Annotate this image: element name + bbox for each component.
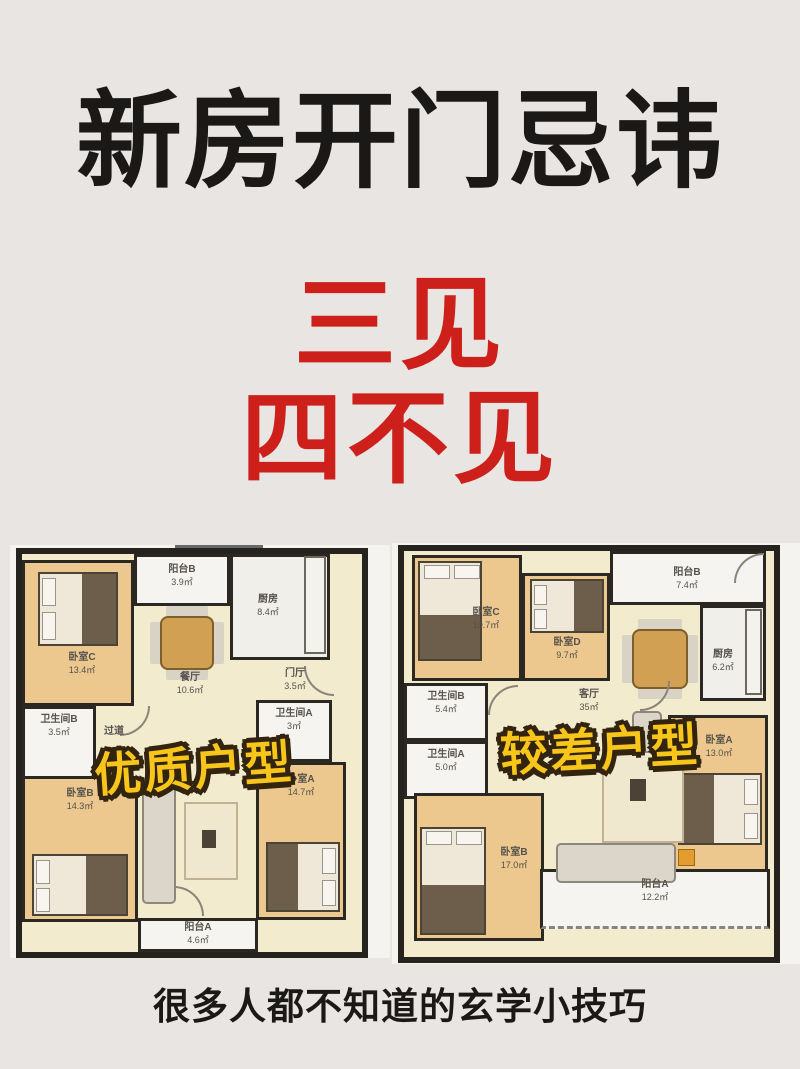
dining-table-icon [160,616,214,670]
room-label-balcony-a: 阳台A 4.6㎡ [138,922,258,946]
room-label-bedroom-c: 卧室C 13.4㎡ [42,652,122,676]
subtitle-three-sees: 三见 [0,272,800,379]
poster: 新房开门忌讳 三见 四不见 [0,0,800,1069]
bed-icon [420,827,486,935]
room-label-bath-b: 卫生间B 5.4㎡ [404,691,488,715]
kitchen-counter-icon [304,556,326,654]
room-label-bedroom-d: 卧室D 9.7㎡ [532,637,602,661]
bed-icon [38,572,118,646]
room-label-bedroom-b: 卧室B 17.0㎡ [474,847,554,871]
subtitle-four-not-sees: 四不见 [0,386,800,493]
side-table-icon [678,849,695,866]
dining-table-icon [632,629,688,689]
room-label-balcony-b: 阳台B 7.4㎡ [632,567,742,591]
room-label-bedroom-c: 卧室C 10.7㎡ [452,607,520,631]
room-label-balcony-b: 阳台B 3.9㎡ [134,564,230,588]
bed-icon [32,854,128,916]
bed-icon [530,579,604,633]
room-label-dining: 餐厅 10.6㎡ [150,672,230,696]
page-title: 新房开门忌讳 [0,76,800,209]
coffee-table-icon [202,830,216,848]
room-label-foyer: 门厅 3.5㎡ [260,668,330,692]
bed-icon [678,773,762,845]
room-label-balcony-a: 阳台A 12.2㎡ [600,879,710,903]
coffee-table-icon [630,779,646,801]
footer-caption: 很多人都不知道的玄学小技巧 [0,976,800,1030]
door-arc-icon [488,685,518,715]
room-label-kitchen: 厨房 8.4㎡ [230,594,306,618]
room-label-living: 客厅 35㎡ [554,689,624,713]
room-label-kitchen: 厨房 6.2㎡ [698,649,748,673]
floorplan-good: 卧室C 13.4㎡ 阳台B 3.9㎡ 餐厅 10.6㎡ 厨房 8.4㎡ 门厅 3… [16,548,368,958]
sofa-icon [556,843,676,883]
floorplan-bad: 卧室C 10.7㎡ 卧室D 9.7㎡ 阳台B 7.4㎡ 厨房 6.2㎡ 卫生间B… [398,545,780,963]
overlay-bad-layout: 较差户型 [458,704,741,788]
door-arc-icon [174,886,204,916]
bed-icon [266,842,340,912]
